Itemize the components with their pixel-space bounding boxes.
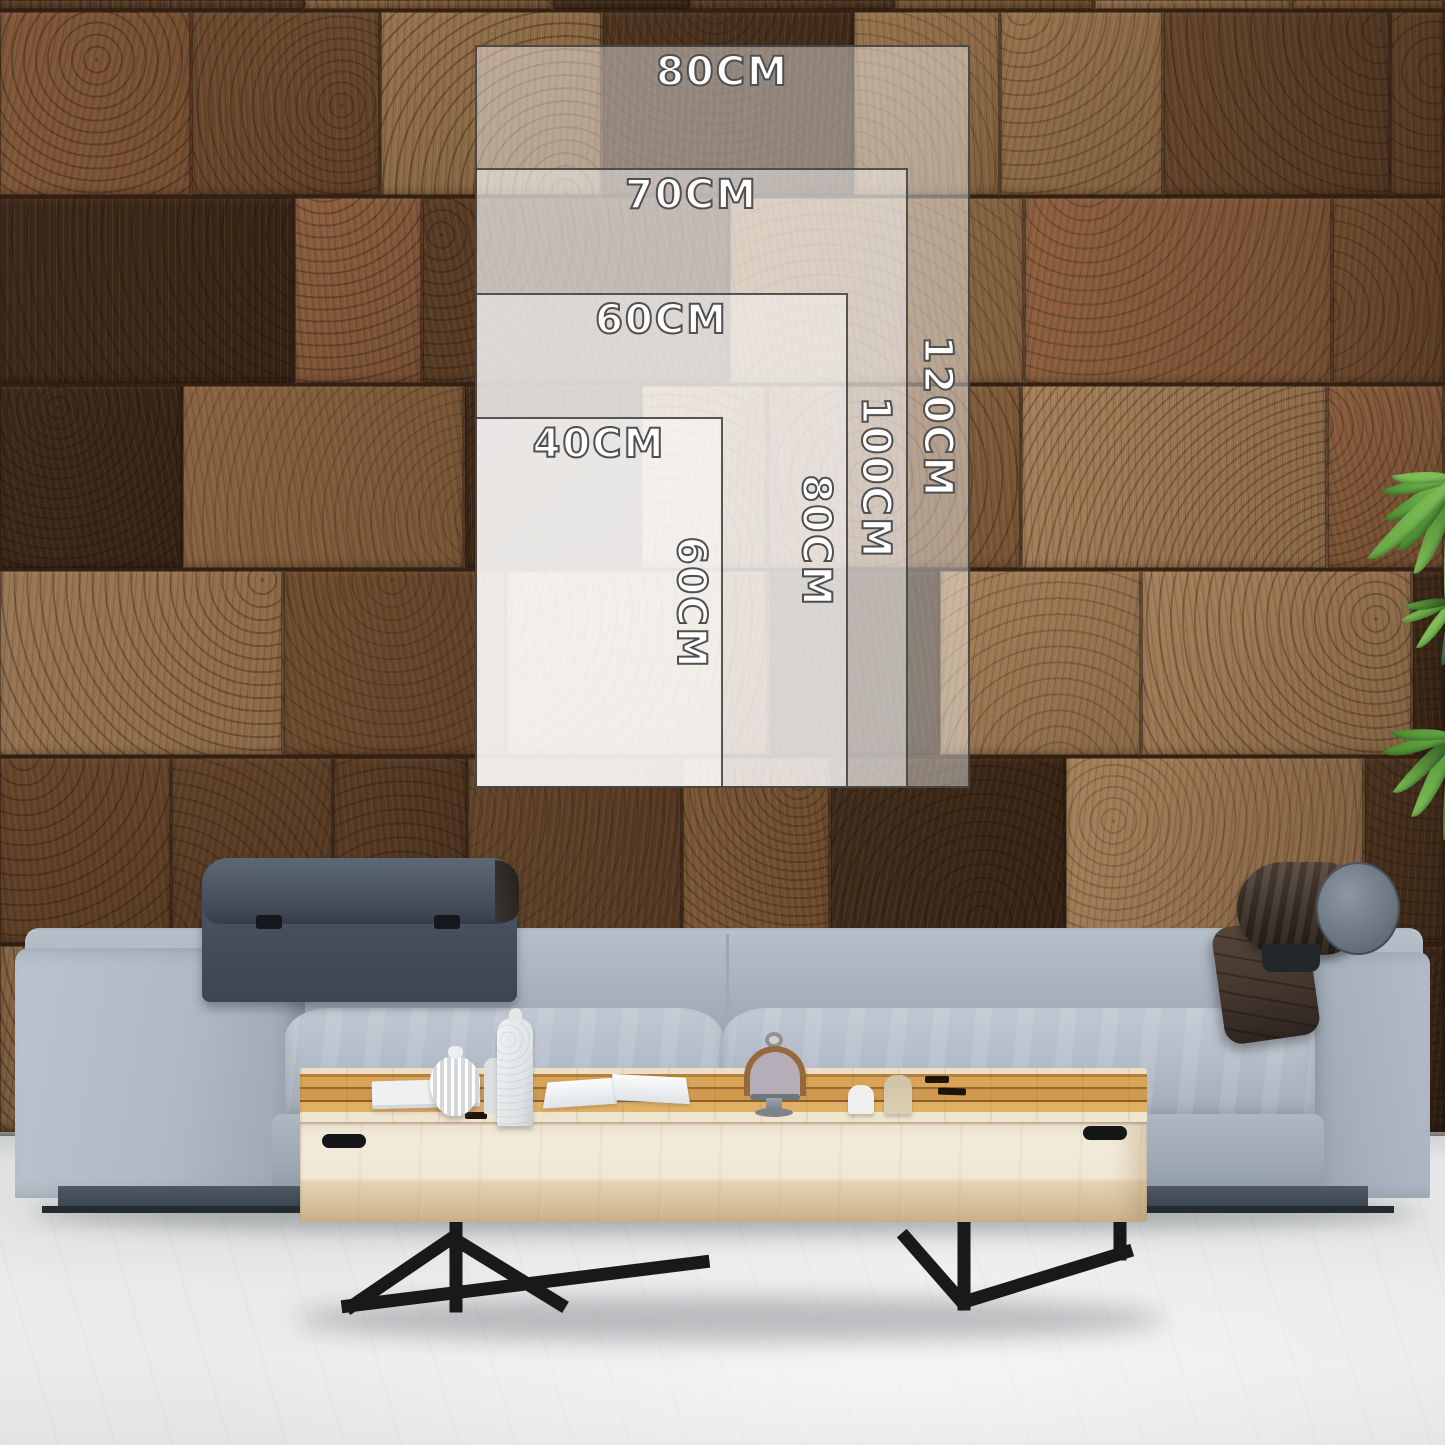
- coffee-table-front: [300, 1122, 1147, 1222]
- table-mirror-foot: [755, 1108, 793, 1117]
- candle-beige: [884, 1075, 912, 1114]
- open-book-page-right: [612, 1074, 690, 1104]
- coffee-table-legs: [0, 0, 1445, 1445]
- vase-tall: [497, 1018, 533, 1126]
- vase-pear-knob: [448, 1046, 463, 1059]
- table-drawer-handle-right: [1083, 1126, 1127, 1140]
- table-top-slot: [938, 1088, 966, 1096]
- table-drawer-handle-left: [322, 1134, 366, 1148]
- candle-white: [848, 1085, 874, 1114]
- table-top-slot: [925, 1076, 949, 1083]
- vase-tall-knob: [509, 1008, 522, 1022]
- size-guide-mockup-scene: 80CM120CM70CM100CM60CM80CM40CM60CM: [0, 0, 1445, 1445]
- open-book-page-left: [543, 1077, 621, 1109]
